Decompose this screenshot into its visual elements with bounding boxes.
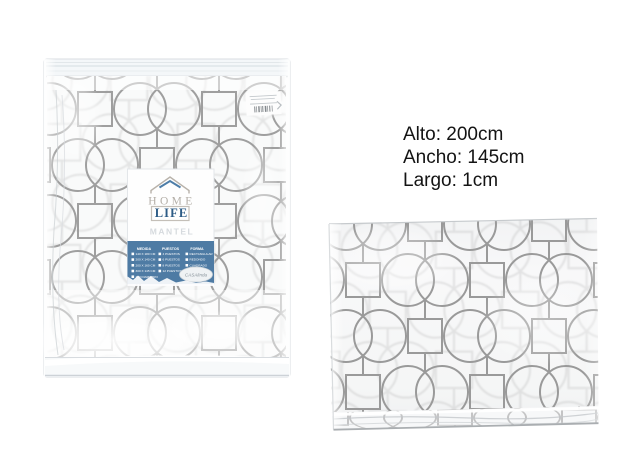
- svg-text:LIFE: LIFE: [155, 206, 189, 220]
- svg-text:Ancho: 145cm: Ancho: 145cm: [403, 147, 524, 168]
- svg-text:300 X 145 CM: 300 X 145 CM: [136, 269, 156, 273]
- svg-text:MANTEL: MANTEL: [150, 227, 194, 237]
- svg-text:4 PUESTOS: 4 PUESTOS: [163, 252, 180, 256]
- svg-text:MEDIDA: MEDIDA: [137, 247, 152, 251]
- svg-text:Largo: 1cm: Largo: 1cm: [403, 170, 498, 191]
- svg-text:FORMA: FORMA: [190, 247, 204, 251]
- svg-text:6 PUESTOS: 6 PUESTOS: [163, 258, 180, 262]
- svg-text:8 PUESTOS: 8 PUESTOS: [163, 263, 180, 267]
- svg-text:200 X 160 CM: 200 X 160 CM: [136, 263, 156, 267]
- svg-text:Alto: 200cm: Alto: 200cm: [403, 124, 503, 145]
- svg-text:REDONDO: REDONDO: [190, 258, 206, 262]
- svg-text:140 X 180 CM: 140 X 180 CM: [136, 252, 156, 256]
- svg-text:200 X 140 CM: 200 X 140 CM: [136, 258, 156, 262]
- svg-text:RECTANGULAR: RECTANGULAR: [190, 252, 214, 256]
- svg-text:12 PUESTOS: 12 PUESTOS: [163, 269, 182, 273]
- svg-text:PUESTOS: PUESTOS: [162, 247, 180, 251]
- svg-text:CASAlinda: CASAlinda: [185, 273, 208, 278]
